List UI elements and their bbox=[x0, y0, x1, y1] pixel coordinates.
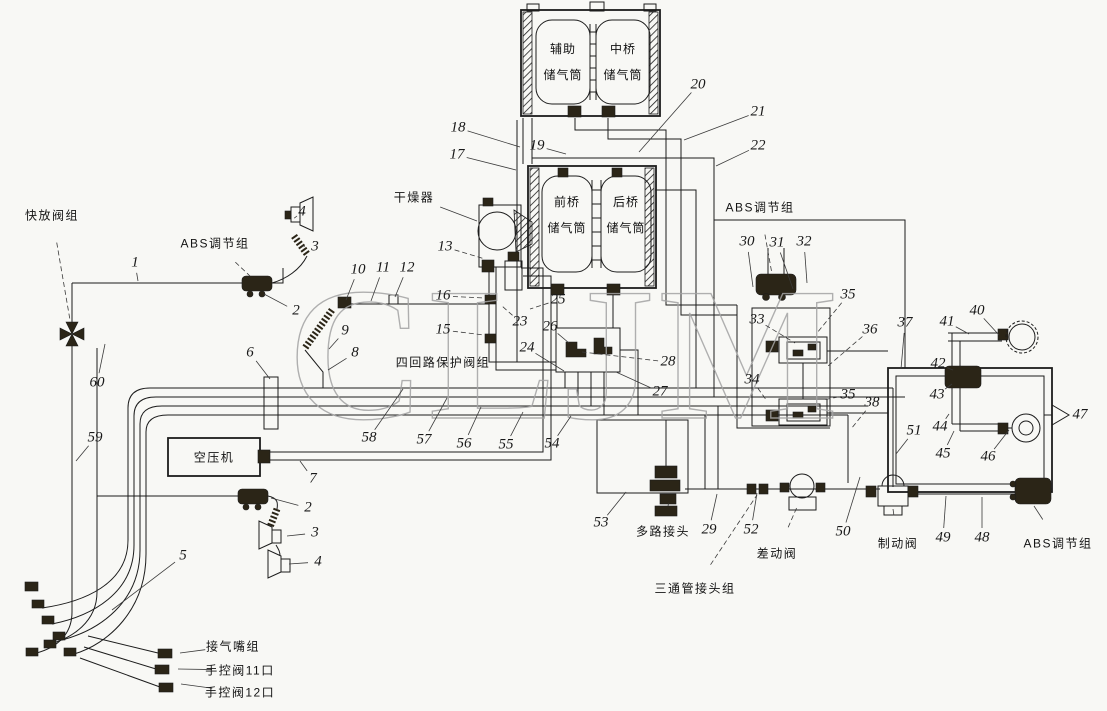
callout-number: 2 bbox=[304, 500, 312, 517]
leader-line bbox=[716, 150, 749, 166]
callout-number: 51 bbox=[907, 423, 922, 440]
callout-number: 13 bbox=[438, 239, 453, 256]
callout-number: 4 bbox=[298, 204, 306, 221]
leader-line bbox=[99, 344, 105, 373]
callout-number: 26 bbox=[543, 319, 558, 336]
callout-number: 55 bbox=[499, 437, 514, 454]
callout-number: 40 bbox=[970, 303, 985, 320]
leader-line bbox=[947, 431, 954, 445]
callout-number: 33 bbox=[750, 312, 765, 329]
callout-number: 47 bbox=[1073, 407, 1088, 424]
leader-line bbox=[137, 273, 138, 281]
leader-line bbox=[287, 534, 305, 536]
callout-number: 42 bbox=[931, 356, 946, 373]
callout-number: 4 bbox=[314, 554, 322, 571]
callout-number: 30 bbox=[740, 234, 755, 251]
component-label: 多路接头 bbox=[636, 523, 690, 540]
callout-number: 35 bbox=[841, 287, 856, 304]
callout-number: 15 bbox=[436, 322, 451, 339]
component-label: 四回路保护阀组 bbox=[396, 354, 491, 371]
leader-line bbox=[468, 131, 520, 147]
callout-number: 46 bbox=[981, 449, 996, 466]
component-label: 差动阀 bbox=[757, 545, 798, 562]
callout-number: 3 bbox=[311, 239, 319, 256]
callout-number: 7 bbox=[309, 471, 317, 488]
callout-number: 53 bbox=[594, 515, 609, 532]
callout-number: 38 bbox=[865, 395, 880, 412]
component-label: ABS调节组 bbox=[180, 235, 249, 252]
component-label: ABS调节组 bbox=[1023, 535, 1092, 552]
callout-number: 49 bbox=[936, 530, 951, 547]
callout-number: 59 bbox=[88, 430, 103, 447]
leader-line bbox=[235, 262, 250, 276]
brake-system-diagram: CLJM 辅助 储气筒 中桥 储气筒 前桥 储气筒 后桥 储气筒 快放阀组ABS… bbox=[0, 0, 1107, 711]
component-label: 手控阀12口 bbox=[205, 684, 275, 701]
callout-number: 17 bbox=[450, 147, 465, 164]
callout-number: 57 bbox=[417, 432, 432, 449]
callout-number: 36 bbox=[863, 322, 878, 339]
leader-line bbox=[1034, 506, 1043, 520]
callout-number: 25 bbox=[551, 292, 566, 309]
callout-number: 19 bbox=[530, 138, 545, 155]
leader-line bbox=[893, 509, 894, 515]
callout-number: 50 bbox=[836, 524, 851, 541]
component-label: 干燥器 bbox=[394, 189, 435, 206]
callout-number: 27 bbox=[653, 384, 668, 401]
callout-number: 9 bbox=[341, 323, 349, 340]
leader-line bbox=[264, 294, 287, 306]
leader-line bbox=[271, 498, 298, 505]
leader-line bbox=[851, 411, 866, 429]
callout-number: 31 bbox=[770, 235, 785, 252]
leader-line bbox=[440, 207, 477, 221]
tank-label-rear-axle: 后桥 储气筒 bbox=[606, 189, 645, 241]
callout-number: 60 bbox=[90, 375, 105, 392]
callout-number: 24 bbox=[520, 340, 535, 357]
callout-number: 16 bbox=[436, 288, 451, 305]
component-label: 手控阀11口 bbox=[205, 662, 274, 679]
tank-label-middle-axle: 中桥 储气筒 bbox=[603, 36, 642, 88]
leader-line bbox=[76, 446, 89, 461]
callout-number: 43 bbox=[930, 387, 945, 404]
leader-line bbox=[944, 496, 946, 528]
leader-line bbox=[607, 492, 626, 515]
callout-number: 22 bbox=[751, 138, 766, 155]
leader-line bbox=[684, 116, 749, 140]
leader-line bbox=[896, 439, 908, 454]
callout-number: 10 bbox=[351, 262, 366, 279]
leader-line bbox=[753, 493, 757, 520]
leader-line bbox=[846, 477, 860, 522]
tank-label-front-axle: 前桥 储气筒 bbox=[547, 189, 586, 241]
leader-line bbox=[467, 157, 516, 170]
leader-line bbox=[57, 243, 70, 320]
component-label: 快放阀组 bbox=[25, 207, 79, 224]
callout-number: 45 bbox=[936, 446, 951, 463]
component-label: 空压机 bbox=[194, 449, 235, 466]
watermark: CLJM bbox=[288, 250, 842, 460]
callout-number: 54 bbox=[545, 436, 560, 453]
right-axle-frame bbox=[888, 321, 1069, 492]
quick-release-valve bbox=[60, 322, 84, 346]
abs-modulator-bottom-right bbox=[1010, 478, 1051, 504]
leader-line bbox=[256, 361, 270, 379]
leader-line bbox=[639, 93, 691, 152]
brake-valve bbox=[866, 475, 918, 515]
callout-number: 44 bbox=[933, 419, 948, 436]
callout-number: 56 bbox=[457, 436, 472, 453]
abs-modulator-bottom-left bbox=[238, 489, 290, 578]
callout-number: 34 bbox=[745, 372, 760, 389]
callout-number: 12 bbox=[400, 260, 415, 277]
differential-valve bbox=[780, 474, 825, 510]
callout-number: 35 bbox=[841, 387, 856, 404]
leader-line bbox=[180, 650, 205, 653]
leader-line bbox=[300, 461, 307, 471]
hose-connectors bbox=[25, 582, 173, 692]
callout-number: 58 bbox=[362, 430, 377, 447]
component-label: 接气嘴组 bbox=[206, 638, 260, 655]
leader-line bbox=[547, 149, 566, 154]
component-label: 制动阀 bbox=[878, 535, 919, 552]
callout-number: 8 bbox=[351, 345, 359, 362]
leader-line bbox=[294, 216, 297, 218]
callout-number: 18 bbox=[451, 120, 466, 137]
callout-number: 48 bbox=[975, 530, 990, 547]
component-label: 三通管接头组 bbox=[654, 580, 735, 597]
tank-label-auxiliary: 辅助 储气筒 bbox=[543, 36, 582, 88]
callout-number: 11 bbox=[376, 260, 390, 277]
callout-number: 29 bbox=[702, 522, 717, 539]
callout-number: 37 bbox=[898, 315, 913, 332]
callout-number: 6 bbox=[246, 345, 254, 362]
callout-number: 23 bbox=[513, 314, 528, 331]
leader-line bbox=[711, 494, 717, 520]
callout-number: 3 bbox=[311, 525, 319, 542]
component-label: ABS调节组 bbox=[725, 199, 794, 216]
leader-line bbox=[289, 563, 308, 564]
leader-line bbox=[901, 333, 904, 369]
callout-number: 2 bbox=[292, 303, 300, 320]
callout-number: 32 bbox=[797, 234, 812, 251]
callout-number: 5 bbox=[179, 548, 187, 565]
callout-number: 1 bbox=[131, 255, 139, 272]
callout-number: 20 bbox=[691, 77, 706, 94]
callout-number: 52 bbox=[744, 522, 759, 539]
callout-number: 21 bbox=[751, 104, 766, 121]
callout-number: 28 bbox=[661, 354, 676, 371]
callout-number: 41 bbox=[940, 314, 955, 331]
